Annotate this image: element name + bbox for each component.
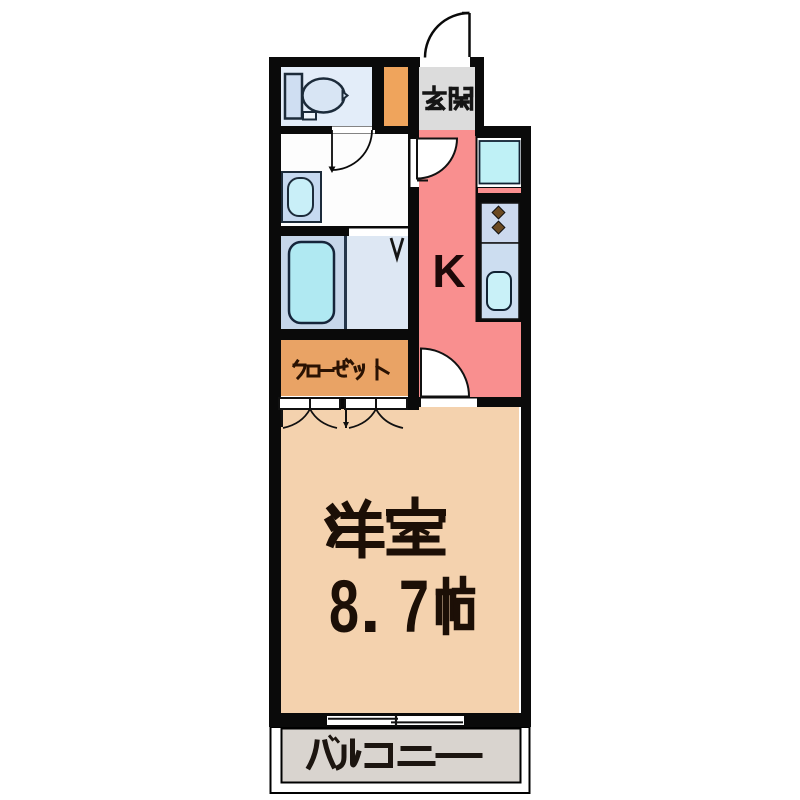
svg-text:.: . — [360, 565, 381, 648]
svg-text:7: 7 — [399, 565, 429, 648]
svg-text:8: 8 — [329, 565, 359, 648]
svg-text:K: K — [432, 245, 465, 297]
